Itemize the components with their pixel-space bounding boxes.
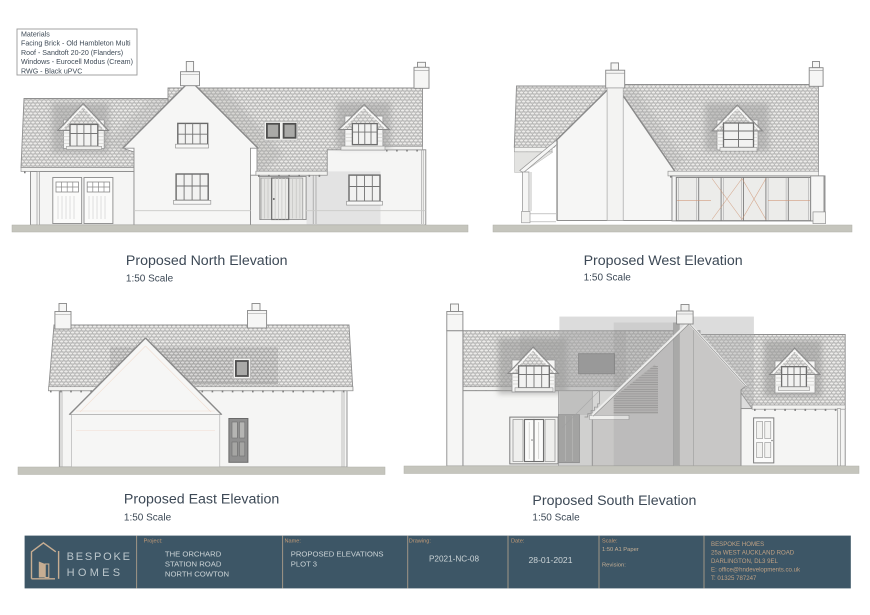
svg-text:PROPOSED ELEVATIONS: PROPOSED ELEVATIONS (291, 550, 384, 559)
svg-text:Date:: Date: (511, 539, 525, 545)
svg-text:Drawing:: Drawing: (409, 539, 432, 545)
svg-text:THE ORCHARD: THE ORCHARD (165, 550, 222, 559)
svg-text:BESPOKE HOMES: BESPOKE HOMES (711, 541, 764, 548)
svg-text:E: office@hndevelopments.co.uk: E: office@hndevelopments.co.uk (711, 566, 801, 573)
svg-text:25a WEST AUCKLAND ROAD: 25a WEST AUCKLAND ROAD (711, 549, 795, 556)
svg-text:Materials: Materials (21, 30, 50, 38)
svg-text:1:50 A1 Paper: 1:50 A1 Paper (602, 547, 639, 553)
svg-text:1:50 Scale: 1:50 Scale (124, 513, 172, 524)
svg-text:STATION ROAD: STATION ROAD (165, 560, 222, 569)
svg-text:Proposed East Elevation: Proposed East Elevation (124, 491, 279, 507)
svg-text:HOMES: HOMES (67, 567, 124, 579)
svg-text:DARLINGTON, DL3 9EL: DARLINGTON, DL3 9EL (711, 558, 779, 565)
svg-text:28-01-2021: 28-01-2021 (529, 555, 573, 565)
svg-text:T: 01325 787247: T: 01325 787247 (711, 575, 757, 582)
svg-text:1:50 Scale: 1:50 Scale (584, 273, 632, 284)
svg-text:Facing Brick - Old Hambleton M: Facing Brick - Old Hambleton Multi (21, 40, 131, 48)
svg-text:Windows - Eurocell Modus (Crea: Windows - Eurocell Modus (Cream) (21, 58, 133, 66)
svg-text:1:50 Scale: 1:50 Scale (532, 512, 580, 523)
svg-text:Proposed South Elevation: Proposed South Elevation (532, 493, 696, 509)
svg-text:Revision:: Revision: (602, 562, 626, 568)
svg-text:Project:: Project: (144, 539, 163, 545)
svg-text:P2021-NC-08: P2021-NC-08 (429, 555, 480, 564)
svg-text:Name:: Name: (285, 539, 302, 545)
svg-text:NORTH COWTON: NORTH COWTON (165, 570, 229, 579)
svg-text:Scale:: Scale: (602, 539, 618, 545)
svg-text:Proposed North Elevation: Proposed North Elevation (126, 253, 288, 269)
svg-text:Roof - Sandtoft 20-20 (Flander: Roof - Sandtoft 20-20 (Flanders) (21, 49, 123, 57)
svg-text:BESPOKE: BESPOKE (67, 551, 132, 563)
svg-text:RWG - Black uPVC: RWG - Black uPVC (21, 68, 82, 76)
svg-text:Proposed West Elevation: Proposed West Elevation (584, 253, 743, 269)
svg-text:PLOT 3: PLOT 3 (291, 560, 317, 569)
svg-text:1:50 Scale: 1:50 Scale (126, 274, 174, 285)
